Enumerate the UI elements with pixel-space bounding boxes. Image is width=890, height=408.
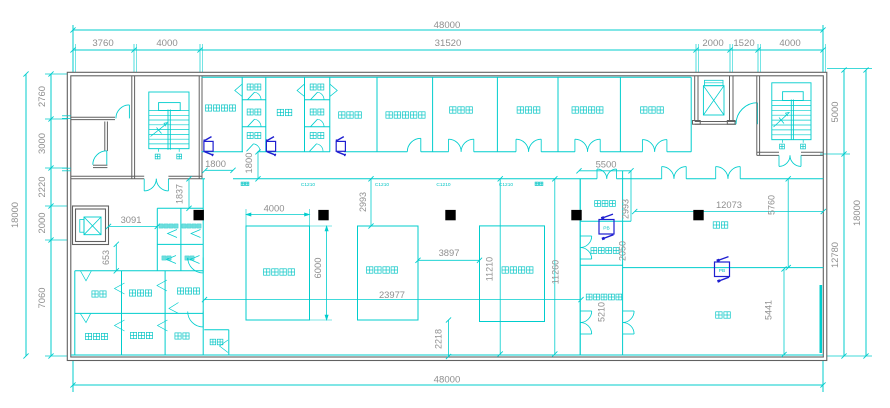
svg-text:2220: 2220 <box>36 177 47 198</box>
svg-text:12780: 12780 <box>829 242 840 268</box>
svg-text:1800: 1800 <box>205 158 226 169</box>
svg-text:1837: 1837 <box>174 184 184 204</box>
svg-text:4000: 4000 <box>779 38 800 49</box>
svg-text:31520: 31520 <box>435 38 462 49</box>
svg-text:11210: 11210 <box>485 257 495 281</box>
svg-text:2760: 2760 <box>36 86 47 107</box>
svg-text:2993: 2993 <box>621 199 631 219</box>
svg-text:5760: 5760 <box>767 195 777 215</box>
svg-text:5000: 5000 <box>829 102 840 123</box>
svg-text:3091: 3091 <box>121 214 142 225</box>
svg-text:4000: 4000 <box>156 38 177 49</box>
svg-text:18000: 18000 <box>851 200 862 226</box>
svg-text:3897: 3897 <box>439 247 460 258</box>
svg-text:1800: 1800 <box>243 153 254 174</box>
svg-text:48000: 48000 <box>434 374 461 385</box>
svg-text:2050: 2050 <box>618 241 628 261</box>
svg-text:C1210: C1210 <box>436 182 450 188</box>
svg-text:7060: 7060 <box>36 288 47 309</box>
svg-text:653: 653 <box>101 250 111 265</box>
svg-text:2000: 2000 <box>36 213 47 234</box>
svg-text:18000: 18000 <box>9 202 20 228</box>
svg-text:PB: PB <box>603 225 609 231</box>
svg-text:11260: 11260 <box>551 260 561 284</box>
svg-text:5500: 5500 <box>596 159 617 170</box>
svg-text:6000: 6000 <box>312 258 323 279</box>
svg-text:23977: 23977 <box>379 289 405 300</box>
svg-text:PB: PB <box>719 268 725 274</box>
svg-text:2000: 2000 <box>702 38 723 49</box>
svg-text:5441: 5441 <box>764 300 774 320</box>
svg-text:48000: 48000 <box>434 20 461 31</box>
svg-text:C1210: C1210 <box>375 182 389 188</box>
svg-text:1520: 1520 <box>733 38 754 49</box>
svg-text:2993: 2993 <box>358 192 368 212</box>
svg-text:C1210: C1210 <box>499 182 513 188</box>
svg-text:5210: 5210 <box>597 302 607 322</box>
svg-text:3760: 3760 <box>92 38 113 49</box>
svg-text:2218: 2218 <box>434 329 444 349</box>
svg-text:C1210: C1210 <box>301 182 315 188</box>
svg-text:4000: 4000 <box>264 203 285 214</box>
svg-text:12073: 12073 <box>716 199 742 210</box>
svg-text:3000: 3000 <box>36 133 47 154</box>
